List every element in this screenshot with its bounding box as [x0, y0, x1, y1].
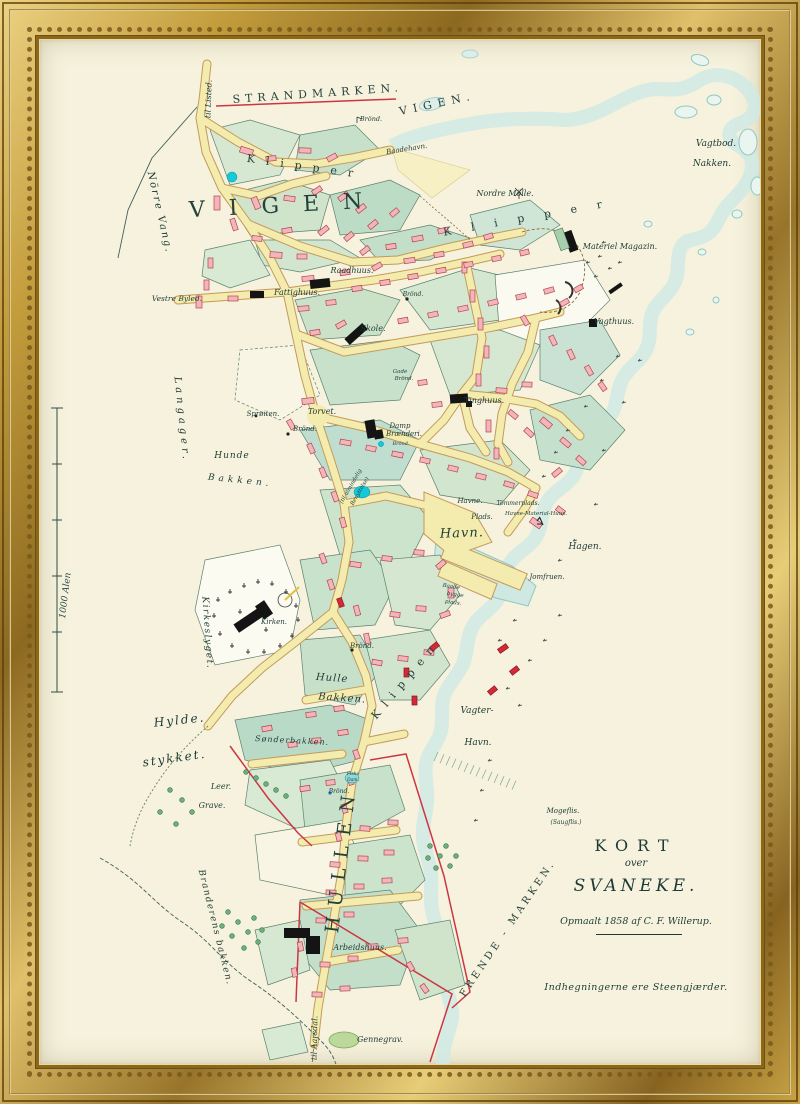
- gold-frame: [0, 0, 800, 1104]
- framed-map-photo: STRANDMARKEN.KlipperVIGEN.VIGENKlipperKl…: [0, 0, 800, 1104]
